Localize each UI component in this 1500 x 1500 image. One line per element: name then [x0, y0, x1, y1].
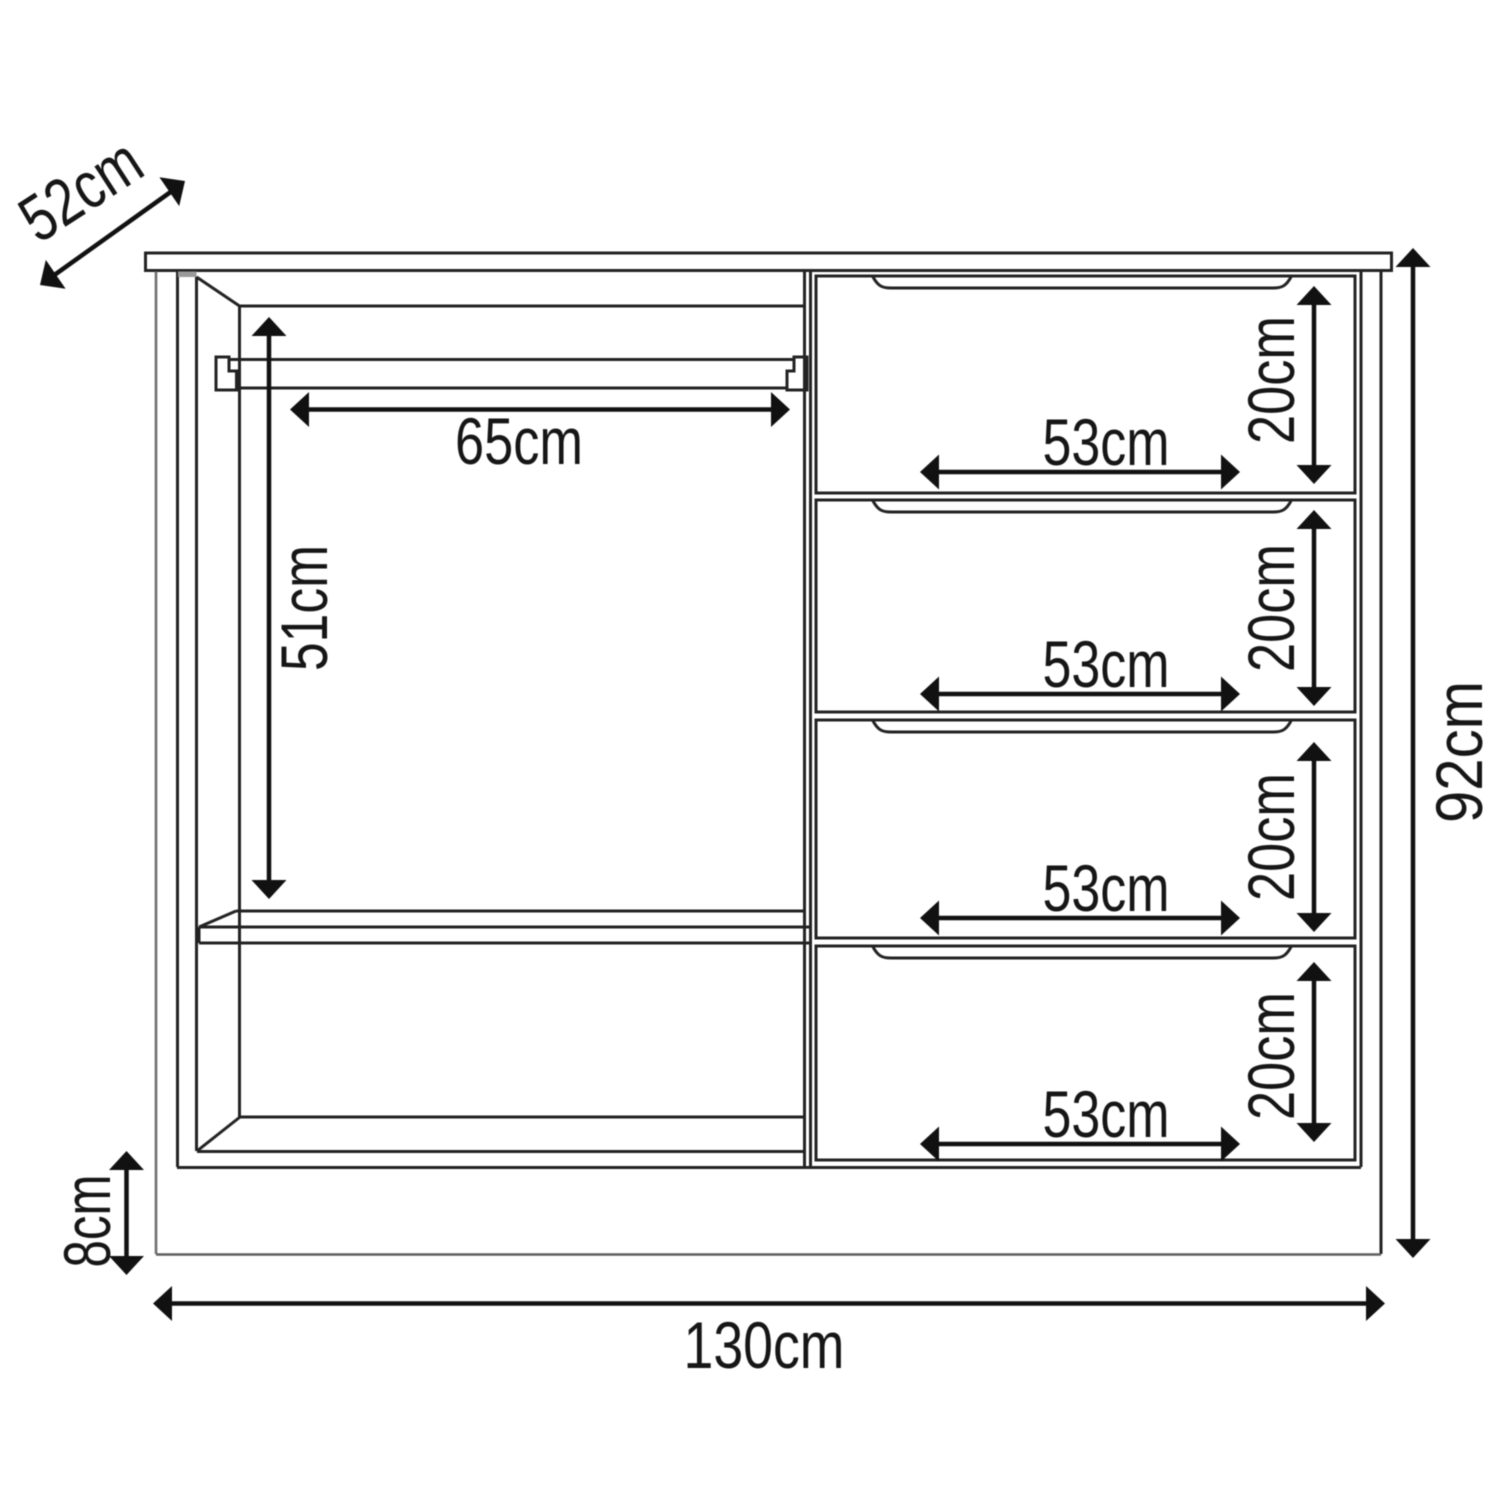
svg-text:53cm: 53cm [1043, 851, 1170, 925]
svg-text:51cm: 51cm [267, 545, 341, 671]
svg-text:53cm: 53cm [1043, 627, 1170, 701]
svg-text:92cm: 92cm [1422, 681, 1496, 823]
svg-text:20cm: 20cm [1234, 992, 1308, 1120]
svg-text:65cm: 65cm [455, 404, 583, 478]
svg-text:53cm: 53cm [1043, 1077, 1170, 1151]
svg-text:130cm: 130cm [684, 1308, 845, 1382]
svg-text:53cm: 53cm [1043, 405, 1170, 479]
svg-text:20cm: 20cm [1234, 773, 1308, 901]
svg-text:20cm: 20cm [1234, 544, 1308, 672]
svg-text:8cm: 8cm [50, 1175, 124, 1268]
svg-text:52cm: 52cm [6, 123, 155, 256]
svg-text:20cm: 20cm [1234, 316, 1308, 444]
